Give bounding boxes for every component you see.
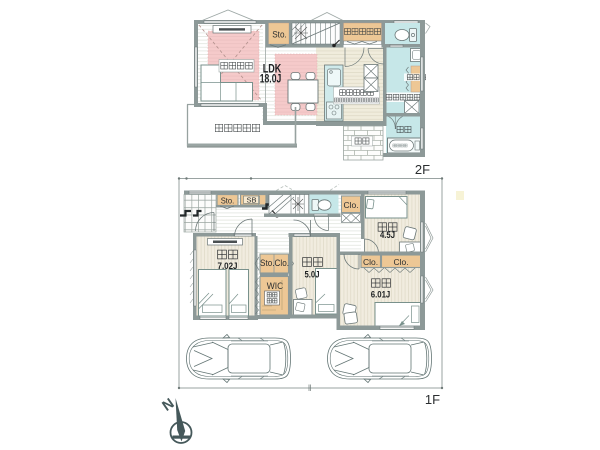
svg-text:Clo.: Clo. (393, 257, 408, 267)
svg-text:Clo.: Clo. (343, 200, 358, 210)
svg-text:5.0J: 5.0J (305, 270, 320, 281)
svg-text:Sto.Clo.: Sto.Clo. (260, 258, 289, 268)
svg-text:2F: 2F (415, 162, 430, 177)
svg-text:4.5J: 4.5J (380, 230, 395, 240)
svg-text:Sto.: Sto. (221, 196, 235, 206)
svg-text:SB: SB (246, 196, 256, 205)
svg-text:6.01J: 6.01J (371, 290, 391, 301)
svg-text:1F: 1F (425, 392, 440, 407)
svg-text:WIC: WIC (267, 281, 284, 291)
svg-text:Clo.: Clo. (363, 257, 378, 267)
svg-text:Sto.: Sto. (272, 30, 287, 41)
svg-text:18.0J: 18.0J (260, 74, 282, 86)
